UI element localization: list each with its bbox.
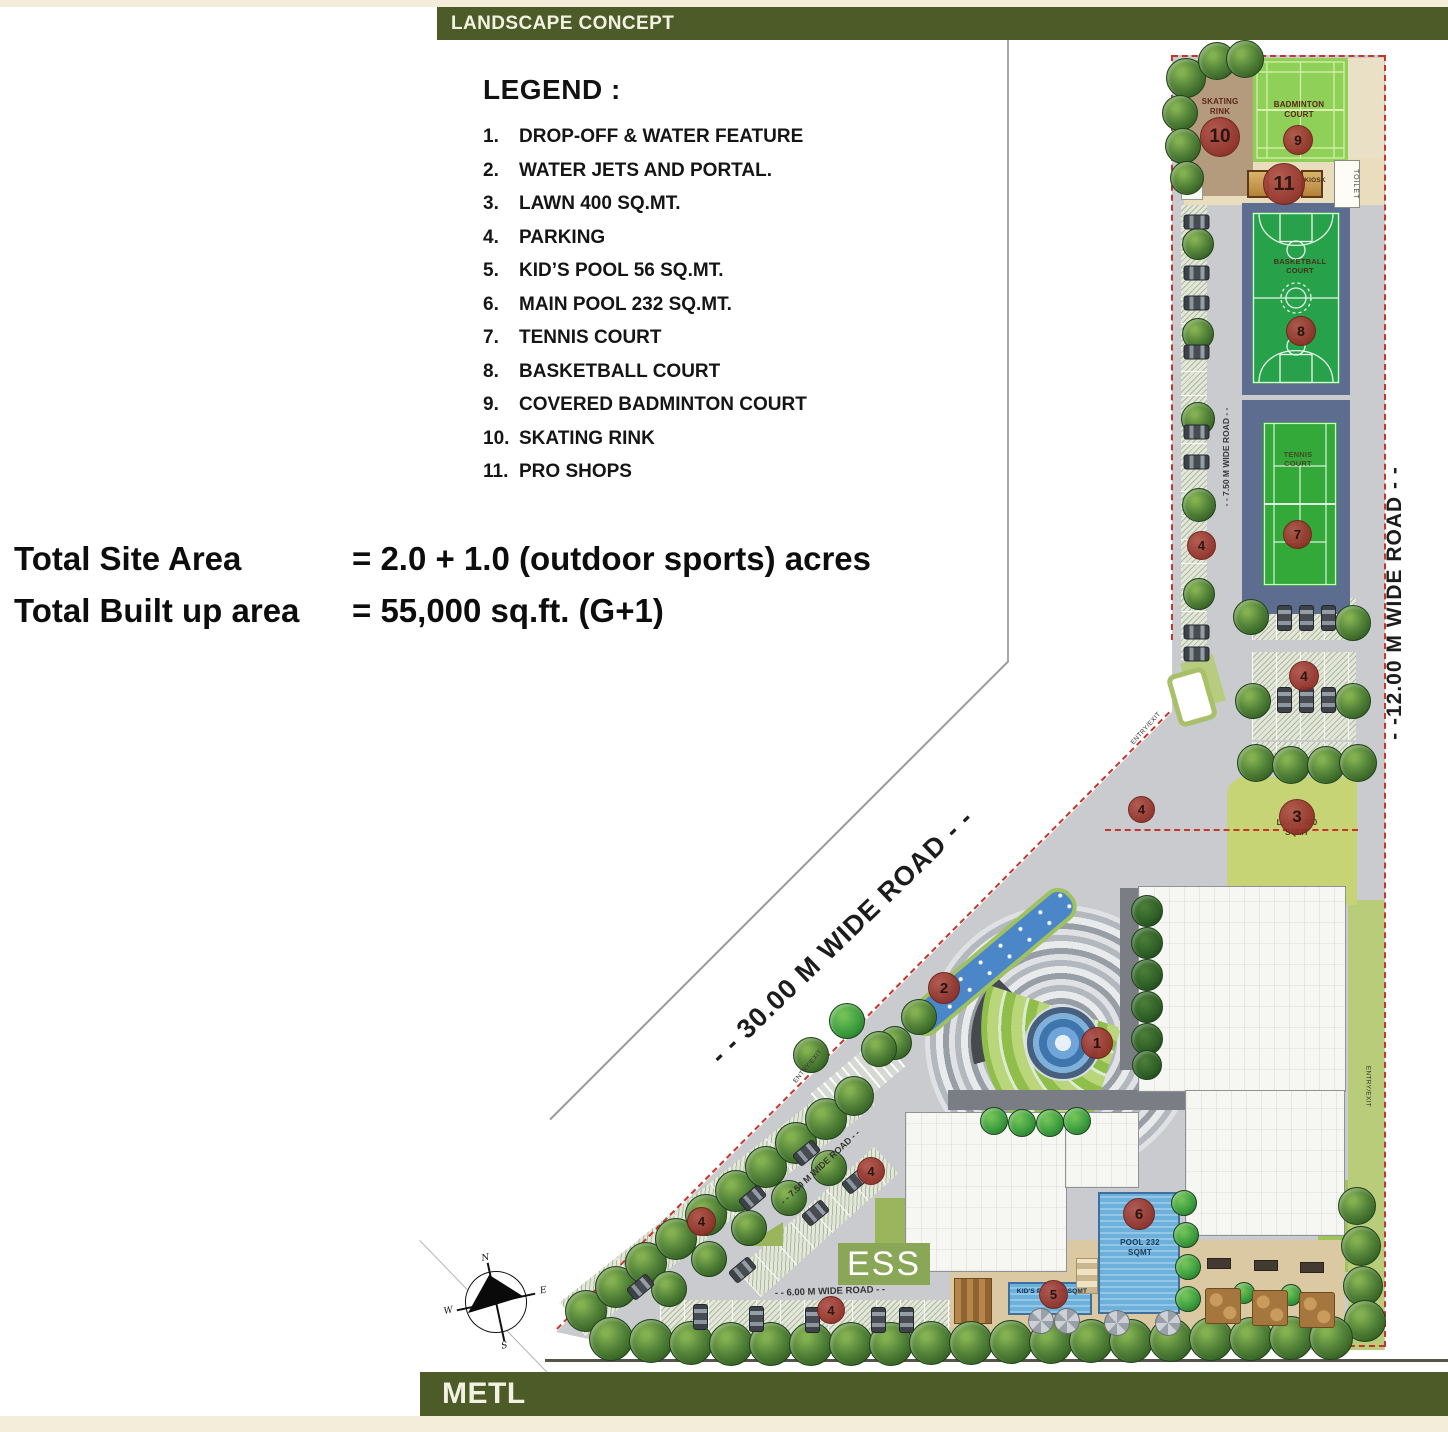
car — [1184, 455, 1210, 470]
car — [1184, 425, 1210, 440]
car — [1184, 215, 1210, 230]
tree — [1063, 1107, 1091, 1135]
basketball-court — [1252, 212, 1340, 384]
car — [1299, 605, 1314, 631]
toilet-block: TOILET — [1334, 160, 1360, 208]
marker-6: 6 — [1123, 1198, 1155, 1230]
tree — [980, 1107, 1008, 1135]
marker-10: 10 — [1200, 117, 1240, 157]
tree — [629, 1319, 673, 1363]
tree — [1132, 1050, 1162, 1080]
toilet-label: TOILET — [1352, 169, 1359, 199]
marker-3: 3 — [1279, 799, 1315, 835]
umbrella-icon — [1155, 1310, 1181, 1336]
tree — [589, 1317, 633, 1361]
marker-8: 8 — [1286, 316, 1316, 346]
tree — [834, 1076, 874, 1116]
tree — [861, 1031, 897, 1067]
legend: LEGEND : 1.DROP-OFF & WATER FEATURE2.WAT… — [483, 74, 953, 495]
legend-item: 7.TENNIS COURT — [483, 327, 953, 349]
tree — [1175, 1286, 1201, 1312]
legend-item: 10.SKATING RINK — [483, 428, 953, 450]
car — [1184, 296, 1210, 311]
marker-4-c: 4 — [1128, 796, 1155, 823]
marker-4-a: 4 — [1187, 531, 1216, 560]
basketball-label: BASKETBALL COURT — [1268, 257, 1332, 275]
car — [1184, 345, 1210, 360]
tree — [1162, 95, 1198, 131]
marker-4-d: 4 — [857, 1157, 885, 1185]
tree — [1338, 1187, 1376, 1225]
tree — [1171, 1190, 1197, 1216]
car — [1277, 687, 1292, 713]
road-label-7-50m-upper: - - 7.50 M WIDE ROAD - - — [1221, 357, 1231, 557]
legend-item: 9.COVERED BADMINTON COURT — [483, 394, 953, 416]
building-block-b — [1185, 1090, 1345, 1236]
tree — [909, 1321, 953, 1365]
road-edge-line-vertical — [1007, 40, 1009, 662]
tree — [1182, 488, 1216, 522]
legend-item: 2.WATER JETS AND PORTAL. — [483, 160, 953, 182]
tree — [1272, 746, 1310, 784]
marker-4-e: 4 — [687, 1207, 716, 1236]
tree — [829, 1322, 873, 1366]
legend-item: 1.DROP-OFF & WATER FEATURE — [483, 126, 953, 148]
seating-table — [1205, 1288, 1241, 1324]
tree — [1182, 228, 1214, 260]
tree — [1175, 1254, 1201, 1280]
legend-items: 1.DROP-OFF & WATER FEATURE2.WATER JETS A… — [483, 126, 953, 483]
tree — [1183, 578, 1215, 610]
umbrella-icon — [1104, 1310, 1130, 1336]
ess-label: ESS — [847, 1245, 921, 1284]
car — [1321, 687, 1336, 713]
car — [749, 1306, 764, 1332]
compass-rose: N E S W — [444, 1250, 548, 1354]
legend-item: 3.LAWN 400 SQ.MT. — [483, 193, 953, 215]
entry-exit-label-east: ENTRY/EXIT — [1365, 1055, 1372, 1119]
summary-line-2: Total Built up area= 55,000 sq.ft. (G+1) — [14, 592, 871, 644]
bench — [1300, 1262, 1324, 1273]
car — [1184, 266, 1210, 281]
legend-item: 11.PRO SHOPS — [483, 461, 953, 483]
summary-label: Total Site Area — [14, 540, 352, 578]
tree — [829, 1003, 865, 1039]
badminton-side-margin — [1348, 58, 1384, 158]
tree — [1131, 927, 1163, 959]
bench — [1207, 1258, 1231, 1269]
ess-block: ESS — [838, 1243, 930, 1285]
tree — [1170, 161, 1204, 195]
legend-heading: LEGEND : — [483, 74, 953, 106]
summary-label: Total Built up area — [14, 592, 352, 630]
tree — [651, 1271, 687, 1307]
bench — [1254, 1260, 1278, 1271]
tennis-label: TENNIS COURT — [1270, 450, 1326, 468]
tennis-court-lines — [1263, 422, 1337, 586]
walk-dark-horizontal — [948, 1090, 1190, 1110]
tree — [1173, 1222, 1199, 1248]
summary-line-1: Total Site Area= 2.0 + 1.0 (outdoor spor… — [14, 540, 871, 592]
tree — [1036, 1109, 1064, 1137]
summary-value: = 2.0 + 1.0 (outdoor sports) acres — [352, 540, 871, 577]
tree — [1237, 744, 1275, 782]
tree — [1226, 40, 1264, 78]
footer-bar: METL — [420, 1372, 1448, 1416]
compass-east-label: E — [539, 1285, 548, 1296]
umbrella-icon — [1028, 1308, 1054, 1334]
tree — [1131, 991, 1163, 1023]
marker-11: 11 — [1263, 163, 1305, 205]
tree — [1339, 744, 1377, 782]
marker-4-b: 4 — [1289, 661, 1319, 691]
tree — [1131, 895, 1163, 927]
legend-item: 8.BASKETBALL COURT — [483, 361, 953, 383]
tennis-court — [1263, 422, 1337, 586]
tree — [1008, 1109, 1036, 1137]
pool-label: POOL 232 SQMT — [1112, 1238, 1168, 1257]
lounger — [954, 1278, 992, 1324]
tree — [1233, 599, 1269, 635]
site-summary: Total Site Area= 2.0 + 1.0 (outdoor spor… — [14, 540, 871, 644]
marker-9: 9 — [1283, 125, 1313, 155]
header-bar: LANDSCAPE CONCEPT — [437, 7, 1448, 40]
compass-north-label: N — [481, 1252, 491, 1263]
tree — [949, 1321, 993, 1365]
legend-item: 5.KID’S POOL 56 SQ.MT. — [483, 260, 953, 282]
badminton-label: BADMINTON COURT — [1266, 100, 1332, 119]
building-block-a — [1138, 886, 1346, 1092]
tree — [1235, 683, 1271, 719]
car — [1277, 605, 1292, 631]
page: LANDSCAPE CONCEPT LEGEND : 1.DROP-OFF & … — [0, 0, 1448, 1432]
road-label-12m: - -12.00 M WIDE ROAD - - — [1383, 453, 1407, 753]
car — [1184, 625, 1210, 640]
car — [1184, 647, 1210, 662]
page-title: LANDSCAPE CONCEPT — [451, 13, 674, 34]
seating-table — [1299, 1292, 1335, 1328]
marker-1: 1 — [1081, 1027, 1113, 1059]
basketball-court-lines — [1252, 212, 1340, 384]
marker-2: 2 — [928, 972, 960, 1004]
skating-rink-label: SKATING RINK — [1194, 97, 1246, 116]
legend-item: 6.MAIN POOL 232 SQ.MT. — [483, 294, 953, 316]
compass-south-label: S — [500, 1341, 508, 1352]
summary-value: = 55,000 sq.ft. (G+1) — [352, 592, 664, 629]
marker-4-f: 4 — [817, 1296, 845, 1324]
tree — [989, 1320, 1033, 1364]
compass-west-label: W — [443, 1305, 454, 1317]
marker-7: 7 — [1283, 520, 1312, 549]
tree — [709, 1322, 753, 1366]
brand-label: METL — [442, 1377, 526, 1410]
tree — [1335, 683, 1371, 719]
car — [1321, 605, 1336, 631]
legend-item: 4.PARKING — [483, 227, 953, 249]
car — [899, 1307, 914, 1333]
tree — [1341, 1226, 1381, 1266]
tree — [1165, 128, 1201, 164]
car — [693, 1304, 708, 1330]
marker-5: 5 — [1039, 1280, 1068, 1309]
tree — [691, 1241, 727, 1277]
seating-table — [1252, 1290, 1288, 1326]
car — [871, 1307, 886, 1333]
tree — [1335, 605, 1371, 641]
umbrella-icon — [1054, 1308, 1080, 1334]
tree — [1131, 959, 1163, 991]
